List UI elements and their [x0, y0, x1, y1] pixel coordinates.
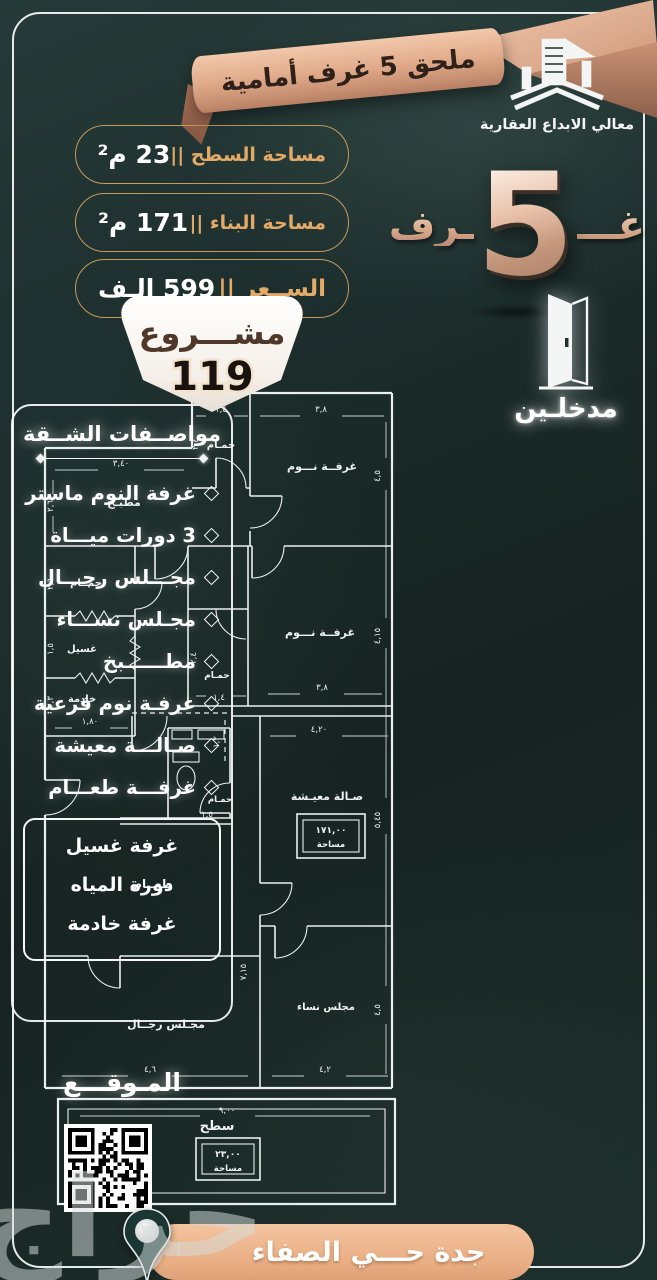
divider-line	[45, 458, 199, 460]
spec-item: 3 دورات ميـــاة	[27, 514, 217, 556]
plan-label: غرفــة نـــوم	[287, 460, 357, 473]
project-number: 119	[170, 354, 254, 400]
real-estate-flyer: ملحق 5 غرف أمامية معالي الابداع العقارية…	[0, 0, 657, 1280]
plan-label: مساحة	[214, 1164, 242, 1174]
utility-room-label: دورة المياه	[29, 874, 215, 896]
spec-item: غرفة النوم ماستر	[27, 472, 217, 514]
spec-item-label: غرفـــة طعـــام	[48, 776, 196, 799]
spec-item-label: مجـــلس رجـــال	[38, 566, 196, 589]
plan-label: ٤,٢	[319, 1065, 331, 1075]
diamond-bullet-icon	[204, 527, 220, 543]
plan-label: غرفــة نـــوم	[285, 626, 355, 639]
qr-code	[64, 1124, 152, 1212]
stat-label: مساحة السطح ||	[170, 144, 326, 166]
plan-label: ٤,١٥	[373, 628, 383, 644]
plan-label: ٤,٢٠	[311, 725, 327, 735]
utility-room-label: غرفة خادمة	[29, 913, 215, 935]
project-label: مشـــروع	[139, 314, 286, 352]
plan-label: مساحة	[317, 840, 345, 850]
spec-item: غرفـة نوم فرعية	[27, 682, 217, 724]
spec-item-label: مجـلس نســـاء	[56, 608, 196, 631]
spec-item-label: غرفة النوم ماستر	[25, 482, 196, 505]
diamond-bullet-icon	[204, 611, 220, 627]
spec-item: مطــــــبخ	[27, 640, 217, 682]
plan-label: مجلس نساء	[297, 1002, 355, 1013]
diamond-bullet-icon	[204, 653, 220, 669]
stat-pill-roof-area: مساحة السطح || 23 م²	[75, 125, 349, 184]
rooms-word-left: ـرف	[389, 206, 474, 246]
entrances-block: مدخلـين	[490, 288, 642, 424]
stat-value: 23 م²	[97, 140, 170, 169]
spec-item-label: صـالـــة معيشة	[55, 734, 196, 757]
specs-title: مواصــفات الشــقة	[13, 422, 231, 446]
location-pin-icon	[118, 1206, 176, 1280]
stat-pill-build-area: مساحة البناء || 171 م²	[75, 193, 349, 252]
diamond-end-icon	[36, 454, 46, 464]
plan-label: سطح	[200, 1119, 235, 1134]
spec-item-label: مطــــــبخ	[103, 650, 196, 673]
utility-room-label: غرفة غسيل	[29, 835, 215, 857]
plan-label: ١٧١,٠٠	[316, 826, 347, 836]
entrances-label: مدخلـين	[490, 394, 642, 424]
ribbon-title: ملحق 5 غرف أمامية	[219, 43, 476, 97]
rooms-count-number: 5	[476, 166, 575, 287]
plan-label: ٤,٥	[373, 1004, 383, 1016]
rooms-word-right: غـــ	[577, 206, 645, 246]
diamond-bullet-icon	[204, 485, 220, 501]
spec-item: مجـلس نســـاء	[27, 598, 217, 640]
plan-label: ٣,٨	[315, 405, 327, 415]
stat-label: مساحة البناء ||	[189, 212, 326, 234]
specs-list: غرفة النوم ماستر3 دورات ميـــاةمجـــلس ر…	[27, 472, 217, 808]
open-door-icon	[536, 288, 596, 392]
city-banner: جدة حـــي الصفاء	[148, 1224, 534, 1280]
stat-value: 171 م²	[98, 208, 188, 237]
specs-panel: مواصــفات الشــقة غرفة النوم ماستر3 دورا…	[11, 404, 233, 1022]
project-badge: مشـــروع 119	[112, 292, 312, 420]
diamond-bullet-icon	[204, 737, 220, 753]
diamond-bullet-icon	[204, 695, 220, 711]
diamond-bullet-icon	[204, 569, 220, 585]
diamond-end-icon	[199, 454, 209, 464]
plan-label: ٢٣,٠٠	[215, 1150, 240, 1160]
plan-label: ٩,٠٠	[219, 1106, 235, 1116]
city-banner-text: جدة حـــي الصفاء	[252, 1237, 486, 1268]
plan-label: ٣,٨	[316, 683, 328, 693]
spec-item: مجـــلس رجـــال	[27, 556, 217, 598]
plan-label: ٤,٥	[373, 470, 383, 482]
diamond-bullet-icon	[204, 779, 220, 795]
location-title: المـوقـــع	[11, 1068, 233, 1097]
spec-item: غرفـــة طعـــام	[27, 766, 217, 808]
plan-label: صـالة معيـشة	[291, 790, 363, 803]
plan-label: ٥,٤٥	[373, 812, 383, 828]
specs-divider	[36, 455, 208, 462]
rooms-count-3d: غـــ 5 ـرف	[412, 140, 622, 312]
utility-rooms-box: غرفة غسيلدورة المياهغرفة خادمة	[23, 818, 221, 961]
company-name: معالي الابداع العقارية	[478, 117, 636, 133]
spec-item: صـالـــة معيشة	[27, 724, 217, 766]
building-icon	[505, 36, 609, 112]
spec-item-label: غرفـة نوم فرعية	[34, 692, 196, 715]
spec-item-label: 3 دورات ميـــاة	[50, 524, 196, 547]
plan-label: ٧,١٥	[239, 964, 249, 980]
